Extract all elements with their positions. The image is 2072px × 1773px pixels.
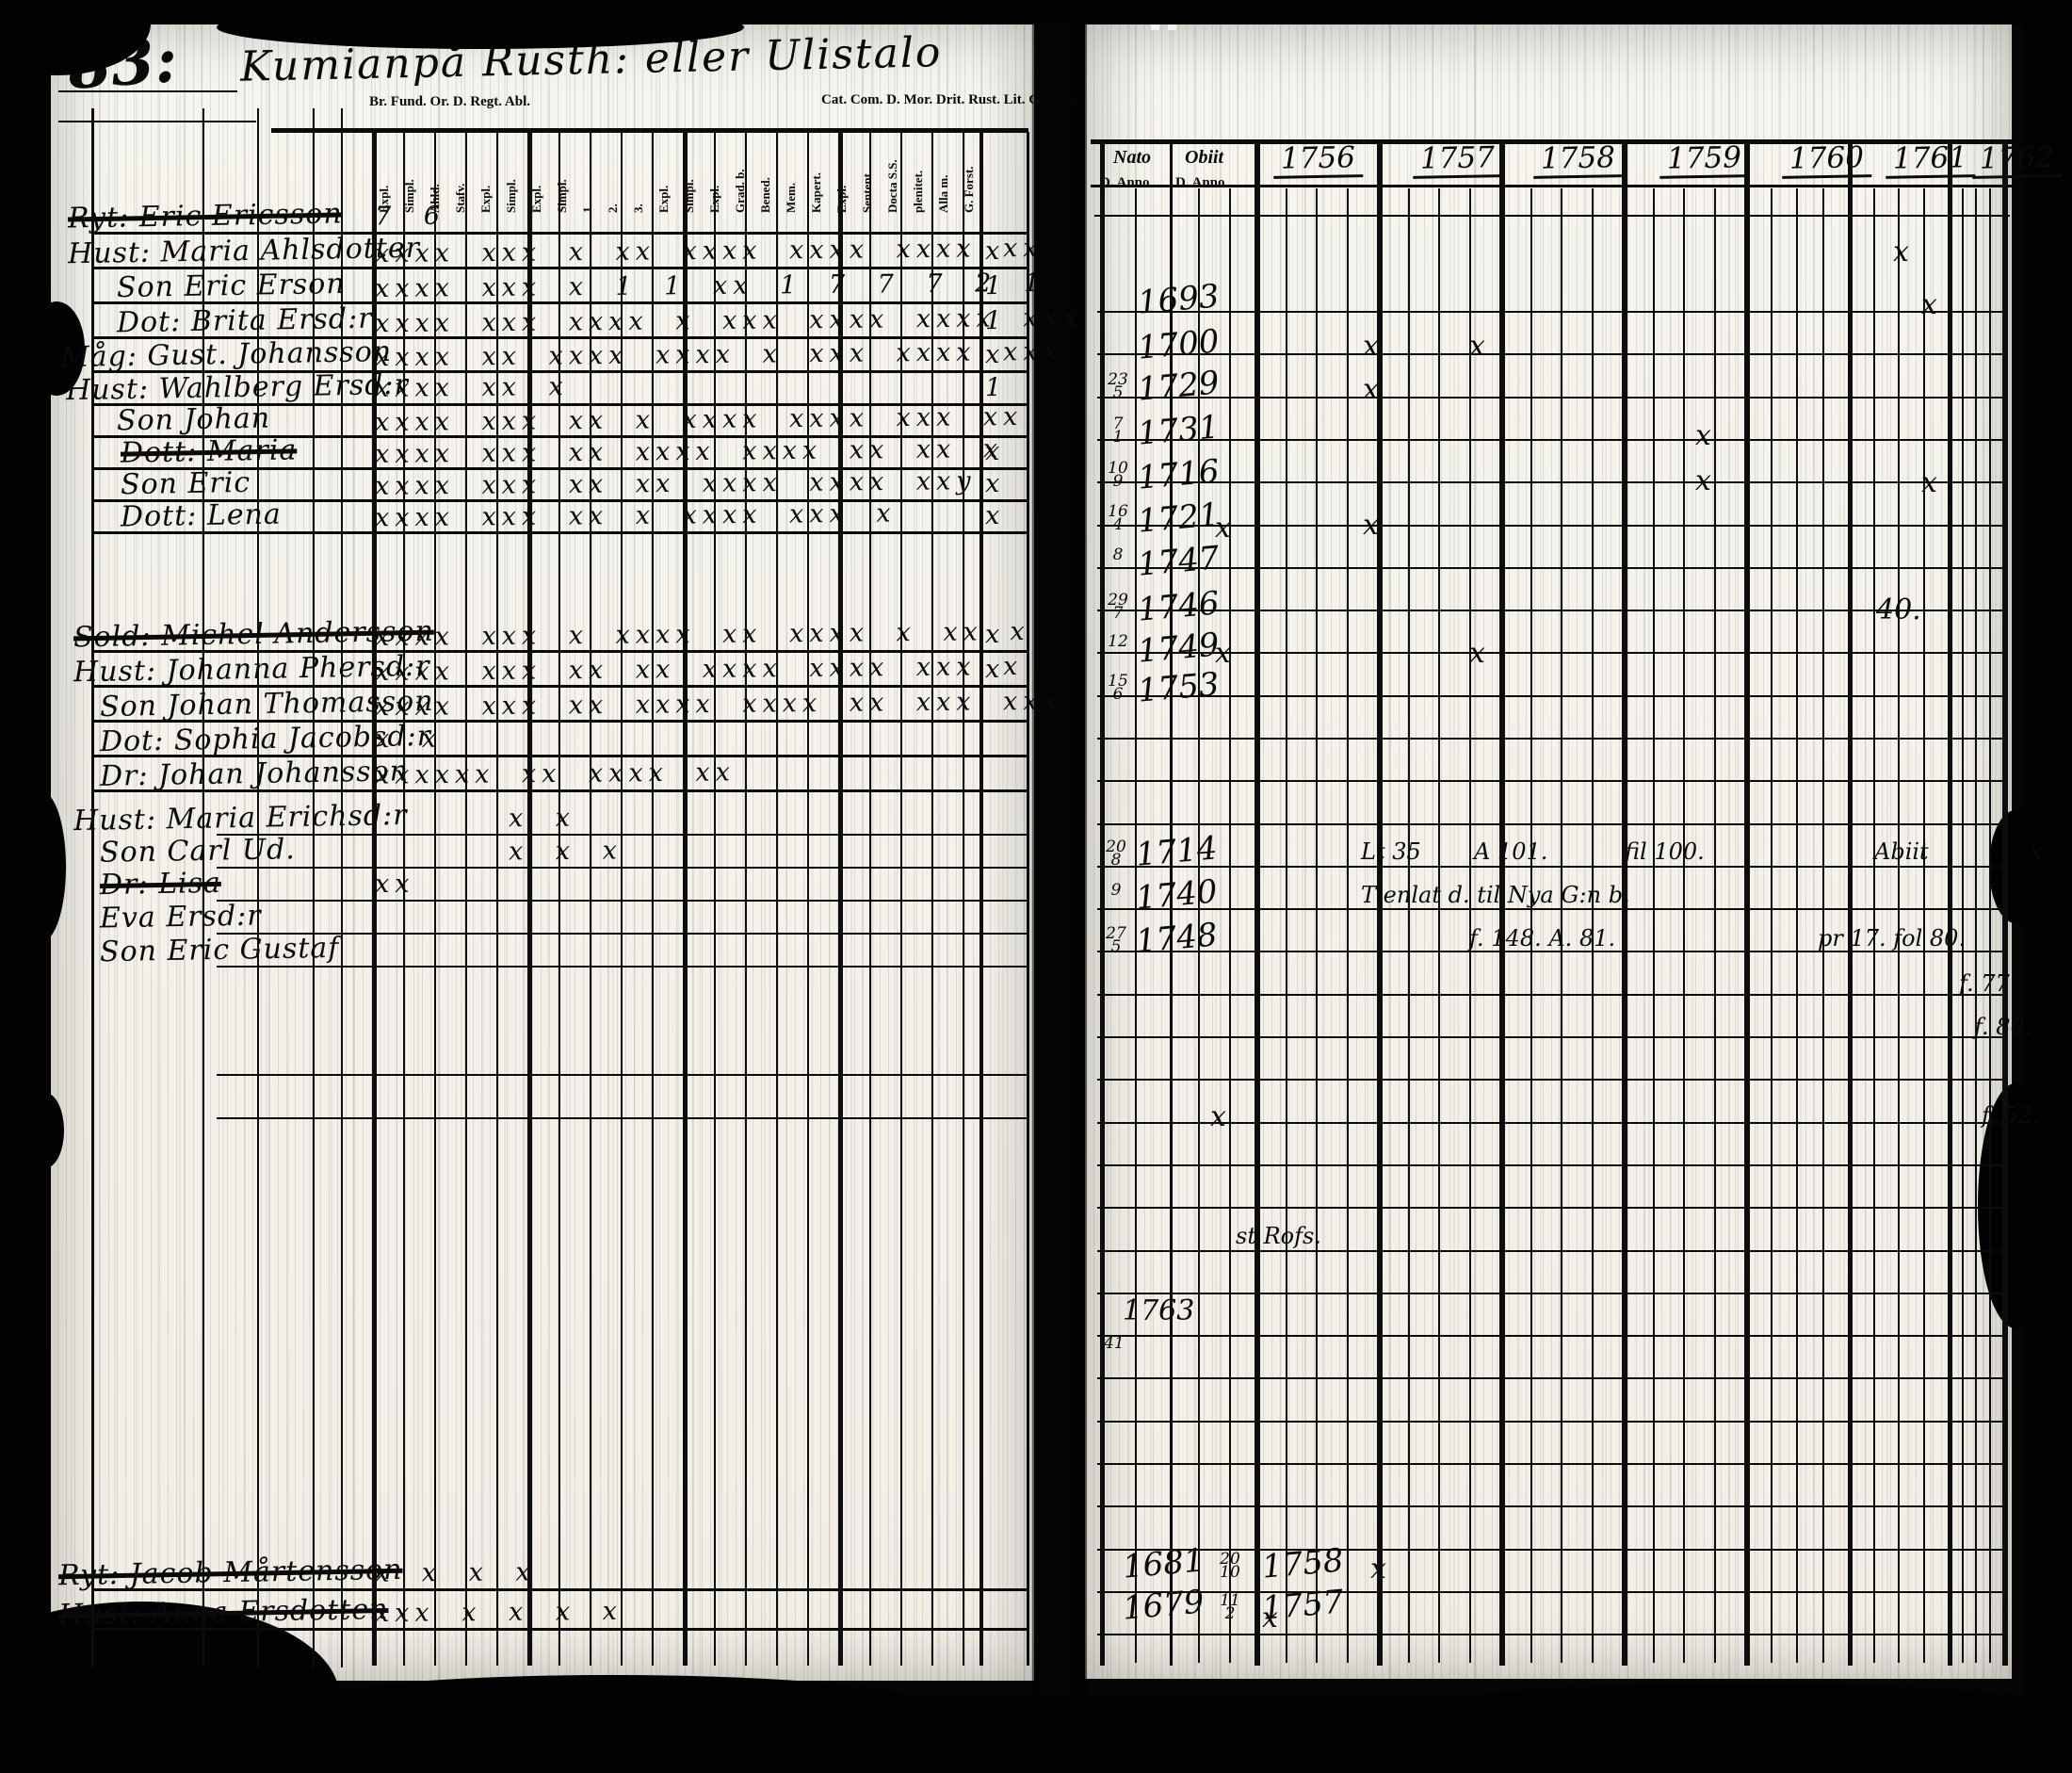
year-column-header: 1758 — [1533, 140, 1624, 179]
birth-day: 235 — [1102, 373, 1134, 400]
entry-note: fil 100. — [1625, 838, 1705, 865]
row-rule — [1097, 1421, 2004, 1423]
row-rule — [91, 1588, 1027, 1591]
row-marks: xxxx xxx xx x xxxx xxx x — [375, 499, 897, 533]
grid-x-mark: x — [1215, 637, 1231, 670]
row-rule — [1097, 439, 2004, 441]
row-rule — [1097, 481, 2004, 483]
grid-line-v — [1316, 188, 1318, 1663]
grid-line-v — [1653, 188, 1655, 1663]
row-rule — [1097, 525, 2004, 527]
birth-day: 109 — [1102, 462, 1134, 489]
late-entry-sub: 41 — [1104, 1334, 1125, 1353]
row-marks: xxxx xxx xxxx x xxx xxxx xxxx xxx — [375, 303, 1083, 339]
table-row-name: Dot: Brita Ersd:r — [117, 302, 373, 340]
column-header-nato: Nato — [1113, 147, 1151, 169]
grid-line-v — [1948, 141, 1952, 1666]
birth-year: 1749 — [1136, 626, 1221, 670]
microfilm-frame: 83: Kumianpå Rusth: eller Ulistalo Br. F… — [0, 0, 2072, 1773]
row-rule — [91, 531, 1027, 534]
row-rule — [1097, 866, 2004, 868]
bottom-entry-death-year: 1758 — [1260, 1541, 1345, 1586]
row-right-mark: x — [985, 620, 1006, 649]
table-row-name: Son Eric Gustaf — [100, 932, 340, 968]
row-marks: xxxx xxx x 1 1 xx 1 7 7 7 2 1 — [375, 268, 1045, 303]
row-rule — [1097, 1634, 2004, 1635]
late-entry-year: 1763 — [1123, 1294, 1194, 1327]
film-edge-smudge — [217, 6, 744, 49]
grid-line-v — [1714, 188, 1716, 1663]
grid-x-mark: x — [1363, 373, 1379, 406]
row-marks: xxxx xx xxxx xxxx x xxx xxxx xxx — [375, 337, 1063, 372]
table-row-name: Eva Ersd:r — [100, 900, 262, 935]
row-marks: x x x — [509, 836, 623, 866]
year-column-header: 1756 — [1273, 140, 1364, 179]
column-label: Simpl. — [504, 179, 519, 213]
entry-year: 1714 — [1134, 829, 1219, 873]
table-row-name: Hust: Anna Ersdotten — [58, 1593, 389, 1632]
row-rule — [1097, 1293, 2004, 1294]
column-label: Expl. — [707, 186, 722, 213]
underline — [58, 90, 237, 92]
table-row-name: Dr: Johan Johansson — [100, 755, 410, 793]
column-label: 3. — [631, 203, 646, 213]
column-label: Expl. — [656, 186, 672, 213]
column-label: Sentent. — [860, 171, 875, 213]
row-rule — [91, 720, 1027, 723]
grid-x-mark: x — [1370, 1553, 1386, 1586]
table-row-name: Dott: Lena — [121, 498, 282, 534]
row-rule — [1097, 695, 2004, 697]
row-marks: xx — [375, 870, 415, 899]
entry-note: f. 148. A. 81. — [1469, 925, 1615, 952]
column-label: Simpl. — [682, 179, 697, 213]
grid-x-mark: x — [1695, 464, 1711, 497]
birth-year: 1747 — [1136, 539, 1221, 583]
header-rule — [1091, 185, 2012, 187]
entry-note: pr 17. fol 80. — [1818, 925, 1966, 952]
grid-x-mark: x — [1893, 236, 1909, 268]
column-label: G. Forst. — [962, 167, 977, 213]
table-row-name: Ryt: Eric Ericsson — [68, 197, 343, 235]
bottom-entry-day: 112 — [1213, 1594, 1247, 1621]
birth-day: 71 — [1102, 417, 1134, 445]
row-marks: 7 6 — [375, 202, 445, 232]
row-rule — [217, 867, 1027, 869]
grid-line-v — [2002, 141, 2008, 1666]
row-rule — [1097, 1377, 2004, 1379]
column-label: Grad. b. — [733, 169, 748, 213]
table-row-name: Son Eric — [121, 466, 251, 501]
birth-day: 8 — [1102, 548, 1134, 561]
row-rule — [1097, 1079, 2004, 1081]
row-marks: xxx x x x x — [375, 1597, 623, 1628]
row-rule — [1097, 1164, 2004, 1166]
row-rule — [1097, 780, 2004, 782]
row-marks: x x — [509, 804, 575, 834]
underline — [58, 121, 256, 122]
entry-day: 9 — [1100, 884, 1132, 897]
grid-line-v — [1683, 188, 1685, 1663]
row-rule — [217, 1074, 1027, 1076]
column-label: 1. — [580, 203, 595, 213]
entry-note: Abiit — [1874, 838, 1929, 865]
row-rule — [1097, 1505, 2004, 1507]
row-right-mark: x — [985, 437, 1006, 466]
row-rule — [1097, 1122, 2004, 1124]
entry-year: 1748 — [1134, 916, 1219, 960]
grid-line-v — [1744, 141, 1750, 1666]
birth-day: 164 — [1102, 505, 1134, 532]
entry-note: A 101. — [1474, 838, 1547, 865]
row-rule — [1097, 1207, 2004, 1209]
year-column-header: 1759 — [1659, 140, 1750, 179]
margin-note: f. 77. — [1959, 970, 2016, 997]
column-label: Simpl. — [555, 179, 570, 213]
birth-year: 1693 — [1136, 277, 1221, 321]
entry-note: Lt 35 — [1361, 838, 1421, 865]
row-right-mark: x — [985, 655, 1006, 684]
grid-x-mark: x — [1363, 330, 1379, 363]
birth-year: 1700 — [1136, 322, 1221, 366]
column-label: Expl. — [834, 186, 850, 213]
column-label: 2. — [606, 203, 621, 213]
row-rule — [1097, 652, 2004, 654]
row-rule — [1097, 1036, 2004, 1038]
grid-x-mark: x — [1921, 288, 1937, 321]
birth-year: 1716 — [1136, 452, 1221, 496]
book-fold-gutter — [1032, 0, 1087, 1773]
row-rule — [1097, 567, 2004, 569]
birth-day: 12 — [1102, 635, 1134, 648]
printed-header-right: Cat. Com. D. Mor. Drit. Rust. Lit. G. L.… — [821, 92, 1075, 108]
row-rule — [1097, 353, 2004, 355]
film-edge-smudge — [283, 1675, 942, 1741]
grid-line-v — [1100, 141, 1105, 1666]
row-right-mark: 1 — [985, 306, 1007, 335]
column-label: Bened. — [758, 177, 773, 213]
column-label: Alla m. — [936, 175, 951, 213]
bottom-entry-day: 2010 — [1213, 1553, 1247, 1580]
row-rule — [1097, 1335, 2004, 1337]
film-edge-smudge — [1413, 1683, 2072, 1739]
column-subheader-danno-1: D. Anno — [1100, 175, 1150, 191]
entry-year: 1740 — [1134, 872, 1219, 917]
table-row-name: Son Eric Erson — [117, 268, 346, 304]
column-label: Expl. — [529, 186, 544, 213]
year-column-header: 1757 — [1413, 140, 1503, 179]
table-top-rule — [271, 128, 1028, 133]
entry-note: x — [2030, 838, 2043, 865]
row-right-mark: x — [985, 236, 1006, 266]
row-rule — [91, 789, 1027, 792]
row-rule — [1097, 908, 2004, 910]
grid-x-mark: x — [1210, 1100, 1226, 1133]
grid-x-mark: x — [1921, 466, 1937, 499]
birth-year: 1753 — [1136, 665, 1221, 709]
row-marks: xxxx xxx xx x xxxx xxxx xxx xx — [375, 402, 1024, 437]
row-marks: xxxx xxx xx xxxx xxxx xx xxx xxx — [375, 687, 1063, 722]
row-rule — [1097, 738, 2004, 740]
entry-day: 208 — [1100, 840, 1132, 868]
grid-line-v — [1347, 188, 1349, 1663]
grid-line-v — [1771, 188, 1773, 1663]
table-row-name: Dott: Maria — [121, 433, 298, 469]
table-row-name: Måg: Gust. Johansson — [60, 335, 393, 374]
row-rule — [1097, 994, 2004, 996]
grid-x-mark: 40. — [1876, 594, 1921, 626]
row-marks: xxxx xxx xx xx xxxx xxxx xxy — [375, 466, 977, 501]
row-rule — [1097, 311, 2004, 313]
margin-note: f. 80. — [1974, 1014, 2032, 1040]
margin-note: st Rofs. — [1236, 1223, 1321, 1249]
row-marks: xxxx xx x — [375, 372, 569, 403]
year-column-header: 1760 — [1782, 140, 1872, 179]
column-label: Docta S.S. — [885, 159, 900, 213]
grid-line-v — [1848, 141, 1853, 1666]
margin-note: f. 52. — [1982, 1102, 2039, 1129]
grid-x-mark: x — [1363, 509, 1379, 542]
bottom-entry-death-year: 1757 — [1260, 1583, 1345, 1627]
grid-x-mark: x — [1469, 637, 1485, 670]
bottom-entry-year: 1679 — [1121, 1583, 1206, 1627]
row-rule — [1097, 1463, 2004, 1465]
row-rule — [1097, 1250, 2004, 1252]
row-marks: x x x x — [375, 1557, 536, 1587]
grid-line-v — [1975, 188, 1977, 1663]
row-marks: xxxx xxx xx xx xxxx xxxx xxx x — [375, 652, 1024, 687]
table-row-name: Ryt: Jacob Mårtensson — [58, 1553, 403, 1592]
column-label: plenitet. — [911, 171, 926, 213]
column-label: Expl. — [478, 186, 494, 213]
row-rule — [217, 966, 1027, 968]
row-rule — [1097, 823, 2004, 825]
table-row-name: Hust: Wahlberg Ersd:r — [66, 368, 409, 407]
row-marks: xxxx xxx xx xxxx xxxx xx xx x — [375, 434, 1003, 469]
birth-year: 1729 — [1136, 364, 1221, 408]
row-marks: x x — [375, 724, 442, 755]
row-rule — [217, 900, 1027, 902]
grid-line-v — [1229, 188, 1231, 1663]
entry-day: 275 — [1100, 927, 1132, 954]
row-right-mark: x — [985, 469, 1006, 498]
grid-line-v — [1255, 141, 1260, 1666]
row-rule — [91, 1628, 1027, 1631]
table-row-name: Son Johan — [117, 402, 271, 438]
birth-day: 156 — [1102, 675, 1134, 702]
column-header-obiit: Obiit — [1185, 147, 1223, 169]
row-rule — [1097, 397, 2004, 399]
grid-x-mark: x — [1695, 419, 1711, 452]
column-label: Mem. — [784, 183, 799, 213]
bottom-entry-year: 1681 — [1121, 1541, 1206, 1586]
row-right-mark: 1 — [985, 373, 1007, 402]
row-right-mark: x — [985, 501, 1006, 530]
grid-line-v — [1408, 188, 1410, 1663]
grid-x-mark: x — [1469, 330, 1485, 363]
entry-note: Tienlat d. til Nya G:n b. — [1361, 882, 1630, 908]
row-marks: xxxx xxx x xxxx xx xxxx x xx x — [375, 617, 1030, 652]
year-column-header: 1762 — [1972, 140, 2063, 179]
row-rule — [217, 1117, 1027, 1119]
table-row-name: Son Carl Ud. — [100, 833, 296, 870]
table-row-name: Hust: Maria Erichsd:r — [73, 799, 408, 838]
film-edge-smudge — [17, 791, 66, 942]
grid-line-v — [1796, 188, 1798, 1663]
film-edge-smudge — [26, 1093, 64, 1168]
row-right-mark: 1 — [985, 271, 1007, 301]
year-column-header: 1761 — [1886, 140, 1976, 179]
grid-line-v — [1989, 188, 1991, 1663]
birth-year: 1731 — [1136, 408, 1221, 452]
grid-x-mark: x — [1215, 512, 1231, 545]
birth-year: 1721 — [1136, 496, 1221, 540]
grid-line-v — [1438, 188, 1440, 1663]
birth-year: 1746 — [1136, 584, 1221, 628]
table-row-name: Dr: Lisa — [100, 867, 221, 902]
table-row-name: Hust: Maria Ahlsdotter — [68, 232, 421, 271]
birth-day: 297 — [1102, 594, 1134, 621]
column-label: Kapert. — [809, 172, 824, 213]
row-rule — [1097, 610, 2004, 611]
row-marks: xxxx xxx x xx xxxx xxxx xxxx xx — [375, 234, 1044, 268]
row-marks: xxxxxx xx xxxx xx — [375, 757, 736, 789]
column-label: Stafv. — [453, 184, 468, 213]
row-right-mark: x — [985, 340, 1006, 369]
grid-line-v — [1286, 188, 1287, 1663]
printed-header-left: Br. Fund. Or. D. Regt. Abl. — [369, 94, 530, 110]
column-subheader-danno-2: D. Anno — [1175, 175, 1225, 191]
